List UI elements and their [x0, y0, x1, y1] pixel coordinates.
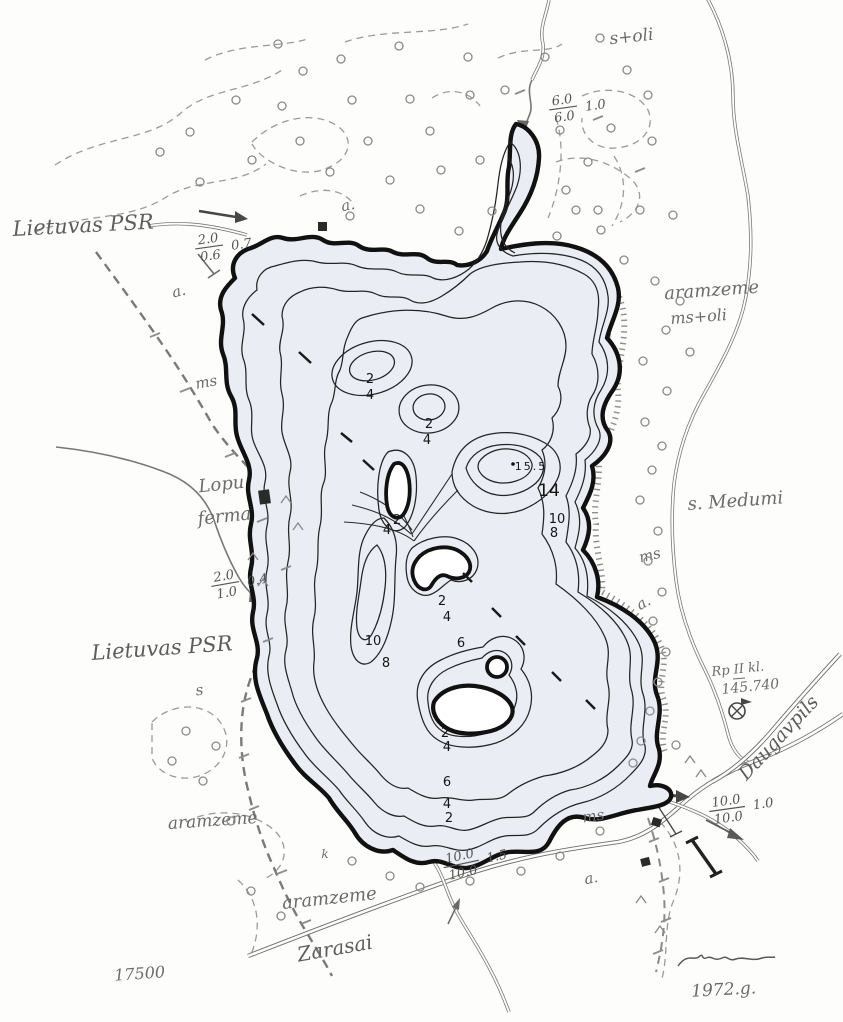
label-benchmark-class: Rp II kl. — [710, 660, 765, 681]
label-s-west: s — [194, 681, 204, 700]
vegetation-circle — [326, 168, 334, 176]
depth-label: 2 — [441, 726, 449, 741]
depth-label: 14 — [538, 481, 560, 501]
vegetation-circle — [517, 867, 525, 875]
label-s-oli: s+oli — [609, 25, 655, 49]
vegetation-circle — [623, 66, 631, 74]
scanned-bathymetric-map: Lietuvas PSR Lietuvas PSR s+oli aramzeme… — [0, 0, 843, 1022]
vegetation-circle — [406, 95, 414, 103]
vegetation-circle — [232, 96, 240, 104]
vegetation-circle — [663, 387, 671, 395]
lake — [220, 124, 671, 868]
depth-label: 2 — [425, 417, 433, 432]
vegetation-circle — [654, 527, 662, 535]
hachure-tick — [150, 333, 160, 337]
label-s-medumi: s. Medumi — [687, 487, 784, 515]
flow-arrow-icon — [727, 828, 744, 840]
label-ms-west: ms — [194, 371, 219, 393]
flow-side-value: 1.0 — [584, 97, 607, 115]
vegetation-circle — [596, 34, 604, 42]
island — [487, 657, 507, 677]
vegetation-circle — [277, 912, 285, 920]
hachure-tick — [301, 920, 311, 924]
vegetation-circle — [651, 277, 659, 285]
flow-side-value: 0.7 — [230, 236, 253, 254]
vegetation-circle — [437, 166, 445, 174]
vegetation-circle — [156, 148, 164, 156]
vegetation-circle — [553, 232, 561, 240]
label-daugavpils: Daugavpils — [733, 691, 823, 785]
vegetation-circle — [364, 137, 372, 145]
label-lietuvas-psr-bottom: Lietuvas PSR — [90, 631, 234, 665]
vegetation-circle — [686, 348, 694, 356]
vegetation-circle — [649, 617, 657, 625]
vegetation-circle — [348, 857, 356, 865]
vegetation-circle — [168, 757, 176, 765]
depth-label: 8 — [382, 656, 390, 671]
depth-label: 4 — [366, 388, 374, 403]
vegetation-circle — [572, 206, 580, 214]
label-ms-east: ms — [637, 544, 663, 567]
label-scale: 17500 — [114, 962, 166, 985]
label-aramzeme-southwest: aramzeme — [167, 808, 258, 834]
meadow-mark — [636, 896, 646, 903]
vegetation-circle — [596, 827, 604, 835]
vegetation-circle — [641, 418, 649, 426]
vegetation-circle — [501, 86, 509, 94]
vegetation-circle — [386, 872, 394, 880]
vegetation-circle — [562, 186, 570, 194]
flow-denominator: 6.0 — [553, 109, 576, 127]
label-aramzeme-south: aramzeme — [281, 883, 378, 914]
lake-shoreline — [220, 124, 671, 868]
hachure-tick — [635, 168, 645, 172]
depth-label: 2 — [445, 811, 453, 826]
vegetation-circle — [426, 127, 434, 135]
depth-label: 10 — [549, 512, 566, 527]
flow-arrow-icon — [235, 211, 248, 223]
vegetation-circle — [636, 206, 644, 214]
vegetation-circle — [182, 727, 190, 735]
vegetation-circle — [662, 326, 670, 334]
depth-label: 4 — [443, 740, 451, 755]
vegetation-circle — [199, 777, 207, 785]
depth-label: 8 — [550, 526, 558, 541]
vegetation-circle — [669, 211, 677, 219]
depth-label: 2 — [366, 372, 374, 387]
vegetation-circle — [597, 226, 605, 234]
hachure-tick — [277, 870, 287, 874]
vegetation-circle — [584, 158, 592, 166]
flow-measurement-outflow: 10.0 10.0 1.0 — [707, 788, 776, 829]
depth-label: 2 — [438, 594, 446, 609]
benchmark-icon — [729, 698, 752, 719]
label-a-east: a. — [633, 591, 654, 613]
depth-label: 4 — [443, 797, 451, 812]
vegetation-circle — [337, 55, 345, 63]
hachure-tick — [239, 754, 249, 758]
label-year: 1972.g. — [691, 978, 757, 1001]
label-ms-oli-east: ms+oli — [670, 305, 728, 328]
vegetation-circle — [636, 496, 644, 504]
vegetation-circle — [212, 742, 220, 750]
vegetation-circle — [639, 357, 647, 365]
vegetation-circle — [455, 227, 463, 235]
flow-side-value: 1.0 — [752, 796, 775, 814]
vegetation-circle — [386, 176, 394, 184]
depth-label: 4 — [443, 610, 451, 625]
vegetation-circle — [299, 67, 307, 75]
vegetation-circle — [464, 53, 472, 61]
vegetation-circle — [658, 588, 666, 596]
hachure-tick — [225, 453, 235, 457]
vegetation-circle — [186, 128, 194, 136]
meadow-mark — [685, 756, 695, 763]
vegetation-circle — [476, 156, 484, 164]
vegetation-circle — [607, 124, 615, 132]
label-k-mark: k — [321, 847, 328, 861]
hachure-tick — [180, 388, 190, 392]
vegetation-circle — [672, 741, 680, 749]
hachure-tick — [659, 878, 669, 882]
depth-label: 4 — [383, 523, 391, 538]
vegetation-circle — [488, 207, 496, 215]
hachure-tick — [661, 918, 671, 922]
vegetation-circle — [644, 91, 652, 99]
label-ms-south: ms — [581, 806, 606, 827]
depth-label: 6 — [443, 775, 451, 790]
label-a-south: a. — [583, 868, 600, 888]
inflow-stream-north — [517, 0, 549, 136]
road-right-to-medumi — [672, 0, 752, 764]
map-canvas: Lietuvas PSR Lietuvas PSR s+oli aramzeme… — [0, 0, 843, 1022]
depth-label: 4 — [423, 433, 431, 448]
vegetation-circle — [594, 206, 602, 214]
island — [386, 463, 410, 518]
flow-denominator: 0.6 — [199, 248, 222, 266]
meadow-mark — [696, 770, 706, 777]
vegetation-circle — [395, 42, 403, 50]
label-ferma: ferma — [195, 503, 253, 530]
label-a-west: a. — [170, 281, 188, 302]
label-benchmark-elevation: 145.740 — [721, 676, 780, 698]
vegetation-circle — [416, 205, 424, 213]
vegetation-circle — [662, 648, 670, 656]
vegetation-circle — [348, 96, 356, 104]
vegetation-circle — [248, 156, 256, 164]
flow-denominator: 1.0 — [215, 584, 238, 602]
vegetation-circle — [620, 256, 628, 264]
label-lietuvas-psr-top: Lietuvas PSR — [11, 210, 154, 241]
signature-mark — [678, 955, 775, 966]
hachure-tick — [653, 950, 663, 954]
depth-label: 6 — [457, 636, 465, 651]
depth-label: 10 — [365, 634, 382, 649]
label-lopu: Lopu — [197, 472, 246, 498]
vegetation-circle — [658, 442, 666, 450]
hachure-tick — [515, 90, 525, 94]
flow-measurement-north: 6.0 6.0 1.0 — [547, 87, 608, 127]
flow-denominator: 10.0 — [713, 809, 744, 828]
vegetation-circle — [278, 102, 286, 110]
depth-label: 2 — [393, 513, 401, 528]
vegetation-circle — [296, 137, 304, 145]
vegetation-circle — [648, 466, 656, 474]
hachure-tick — [593, 116, 603, 120]
vegetation-circle — [648, 137, 656, 145]
max-depth-label: 15.5 — [515, 460, 548, 473]
